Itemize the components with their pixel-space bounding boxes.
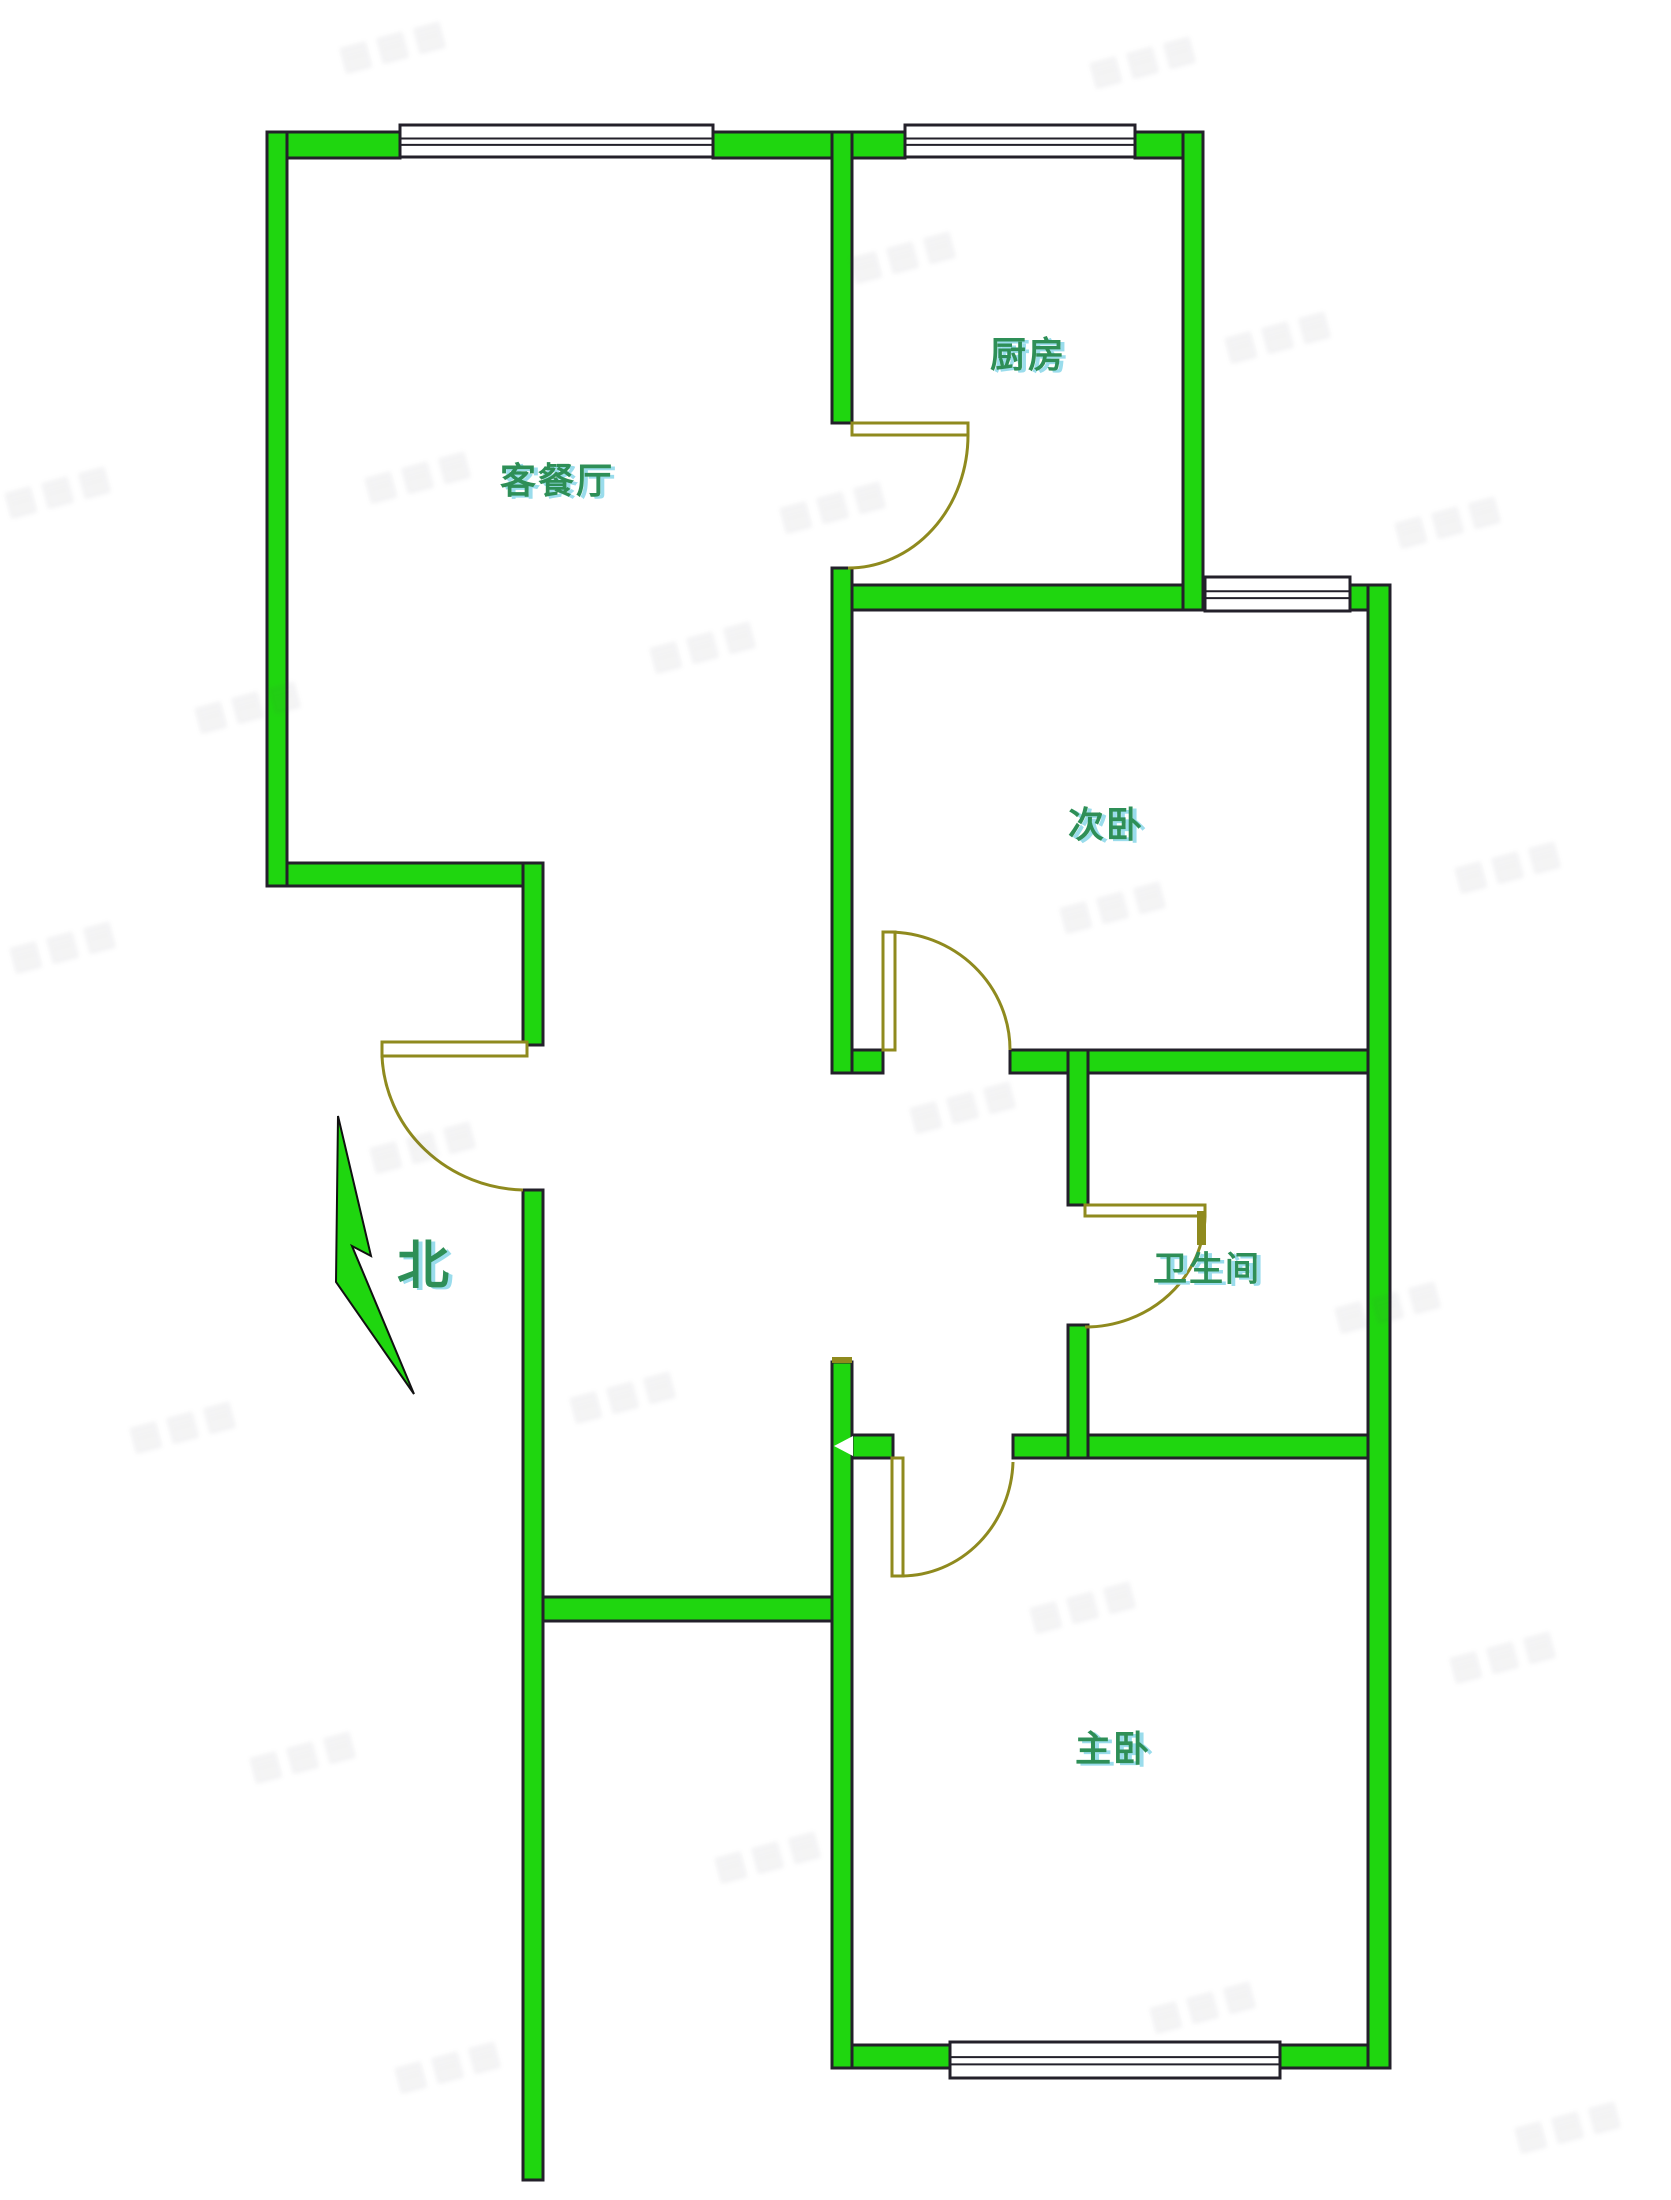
window bbox=[950, 2042, 1280, 2078]
wall-segment bbox=[852, 1050, 883, 1073]
floor-plan: 客餐厅 厨房 次卧 卫生间 主卧 北 ▦▦▦▦▦▦▦▦▦▦▦▦▦▦▦▦▦▦▦▦▦… bbox=[0, 0, 1671, 2200]
window bbox=[1205, 577, 1350, 611]
wall-segment bbox=[523, 863, 543, 1045]
bathroom-door-leaf bbox=[1085, 1205, 1205, 1216]
window bbox=[905, 125, 1135, 157]
wall-segment bbox=[1183, 132, 1203, 610]
room-label-kitchen: 厨房 bbox=[990, 326, 1066, 378]
wall-segment bbox=[1068, 1050, 1088, 1205]
wall-segment bbox=[832, 132, 852, 423]
bedroom-master-door-swing-arc bbox=[902, 1462, 1013, 1576]
wall-end-cap bbox=[832, 1357, 852, 1363]
wall-segment bbox=[267, 132, 287, 886]
wall-segment bbox=[832, 1362, 852, 2068]
wall-segment bbox=[543, 1597, 852, 1621]
entry-door-leaf bbox=[382, 1042, 527, 1056]
wall-segment bbox=[267, 863, 543, 886]
wall-segment bbox=[1010, 1050, 1372, 1073]
wall-segment bbox=[1068, 1325, 1088, 1458]
window bbox=[400, 125, 713, 157]
wall-segment bbox=[832, 568, 852, 1073]
wall-segment bbox=[523, 1190, 543, 2180]
wall-segment bbox=[852, 1435, 893, 1458]
floorplan-svg bbox=[0, 0, 1671, 2200]
kitchen-door-leaf bbox=[852, 423, 968, 435]
wall-segment bbox=[852, 585, 1205, 610]
bedroom-second-door-leaf bbox=[883, 932, 895, 1050]
room-label-bathroom: 卫生间 bbox=[1153, 1242, 1261, 1291]
north-label: 北 bbox=[397, 1224, 449, 1299]
room-label-bedroom-master: 主卧 bbox=[1075, 1720, 1151, 1772]
wall-segment bbox=[713, 132, 905, 158]
room-label-bedroom-second: 次卧 bbox=[1068, 796, 1144, 848]
bedroom-master-door-leaf bbox=[892, 1458, 903, 1576]
bedroom-second-door-swing-arc bbox=[888, 932, 1010, 1050]
room-label-living-dining: 客餐厅 bbox=[500, 452, 614, 504]
